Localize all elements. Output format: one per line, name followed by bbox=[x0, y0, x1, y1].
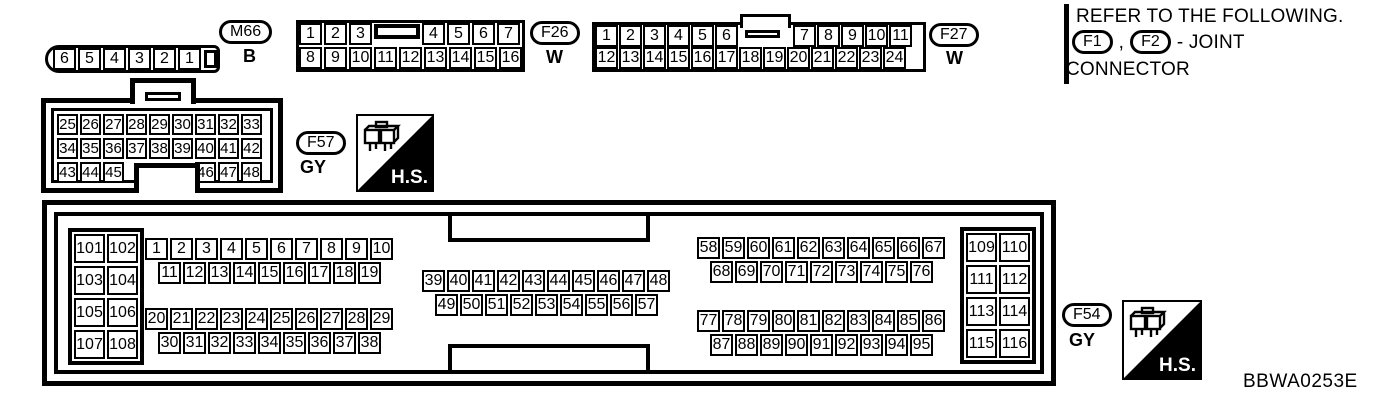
pin-cell: 24 bbox=[883, 47, 906, 69]
pin-cell: 72 bbox=[810, 261, 833, 283]
f57-row-34-42: 343536373839404142 bbox=[57, 138, 267, 159]
pin-cell: 116 bbox=[999, 329, 1030, 358]
f54-row-30-38: 303132333435363738 bbox=[158, 332, 393, 354]
pin-cell: 37 bbox=[333, 332, 356, 354]
pin-cell: 7 bbox=[497, 23, 520, 45]
f27-row-top: 123456 7891011 bbox=[595, 25, 923, 47]
pin-cell: 106 bbox=[107, 298, 138, 327]
hs-connector-glyph-icon bbox=[362, 120, 404, 156]
pin-cell: 90 bbox=[785, 334, 808, 356]
pin-cell: 76 bbox=[910, 261, 933, 283]
f54-bottom-key-slot bbox=[448, 344, 650, 370]
pin-cell: 14 bbox=[643, 47, 666, 69]
pin-cell: 51 bbox=[485, 294, 508, 316]
pin-cell: 64 bbox=[847, 237, 870, 259]
pin-cell: 3 bbox=[643, 25, 666, 47]
pin-cell: 40 bbox=[447, 270, 470, 292]
color-code-f57: GY bbox=[300, 158, 326, 176]
pin-cell: 32 bbox=[218, 114, 239, 135]
pin-cell: 21 bbox=[170, 308, 193, 330]
color-code-f26: W bbox=[546, 48, 563, 66]
pin-cell: 44 bbox=[80, 162, 101, 183]
pin-cell: 48 bbox=[241, 162, 262, 183]
pin-cell: 103 bbox=[74, 266, 105, 295]
connector-label-f57: F57 bbox=[296, 131, 346, 155]
pin-cell: 5 bbox=[447, 23, 470, 45]
pin-cell: 20 bbox=[787, 47, 810, 69]
pin-cell: 104 bbox=[107, 266, 138, 295]
pin-cell: 70 bbox=[760, 261, 783, 283]
pin-cell: 25 bbox=[270, 308, 293, 330]
pin-cell: 84 bbox=[872, 310, 895, 332]
pin-cell: 37 bbox=[126, 138, 147, 159]
pin-cell: 89 bbox=[760, 334, 783, 356]
f54-row-39-48: 39404142434445464748 bbox=[422, 270, 670, 292]
pin-cell: 8 bbox=[299, 47, 322, 69]
f54-row-11-19: 111213141516171819 bbox=[158, 262, 393, 284]
connector-m66-body: 654321 bbox=[45, 45, 220, 73]
pin-cell: 74 bbox=[860, 261, 883, 283]
pin-cell: 18 bbox=[333, 262, 356, 284]
f54-group-39-57: 39404142434445464748 495051525354555657 bbox=[422, 270, 670, 316]
pin-cell: 46 bbox=[597, 270, 620, 292]
pin-cell: 11 bbox=[889, 25, 912, 47]
f27-pins-1-6: 123456 bbox=[595, 25, 738, 47]
pin-cell: 92 bbox=[835, 334, 858, 356]
pin-cell: 4 bbox=[103, 48, 126, 70]
hs-label: H.S. bbox=[391, 168, 428, 187]
pin-cell: 77 bbox=[697, 310, 720, 332]
pin-cell: 79 bbox=[747, 310, 770, 332]
pin-cell: 19 bbox=[763, 47, 786, 69]
pin-cell: 107 bbox=[74, 330, 105, 359]
pin-cell: 21 bbox=[811, 47, 834, 69]
pin-cell: 22 bbox=[835, 47, 858, 69]
pin-cell: 65 bbox=[872, 237, 895, 259]
pin-cell: 109 bbox=[966, 233, 997, 262]
pin-cell: 42 bbox=[241, 138, 262, 159]
pin-cell: 110 bbox=[999, 233, 1030, 262]
pin-cell: 5 bbox=[245, 238, 268, 260]
pin-cell: 16 bbox=[283, 262, 306, 284]
pin-cell: 45 bbox=[103, 162, 124, 183]
f54-row-77-86: 77787980818283848586 bbox=[697, 310, 945, 332]
pin-cell: 7 bbox=[295, 238, 318, 260]
pin-cell: 41 bbox=[472, 270, 495, 292]
pin-cell: 8 bbox=[817, 25, 840, 47]
pin-cell: 17 bbox=[308, 262, 331, 284]
pin-cell: 73 bbox=[835, 261, 858, 283]
pin-cell: 40 bbox=[195, 138, 216, 159]
pin-cell: 86 bbox=[922, 310, 945, 332]
pin-cell: 17 bbox=[715, 47, 738, 69]
pin-cell: 48 bbox=[647, 270, 670, 292]
pin-cell: 39 bbox=[422, 270, 445, 292]
pin-cell: 1 bbox=[145, 238, 168, 260]
pin-cell: 91 bbox=[810, 334, 833, 356]
pin-cell: 26 bbox=[295, 308, 318, 330]
pin-cell: 8 bbox=[320, 238, 343, 260]
pin-cell: 38 bbox=[149, 138, 170, 159]
pin-cell: 31 bbox=[195, 114, 216, 135]
pin-cell: 66 bbox=[897, 237, 920, 259]
pin-cell: 114 bbox=[999, 297, 1030, 326]
pin-cell: 3 bbox=[128, 48, 151, 70]
pin-cell: 113 bbox=[966, 297, 997, 326]
pin-cell: 6 bbox=[715, 25, 738, 47]
pin-cell: 27 bbox=[103, 114, 124, 135]
connector-label-f26: F26 bbox=[530, 21, 580, 45]
pin-cell: 6 bbox=[472, 23, 495, 45]
pin-cell: 81 bbox=[797, 310, 820, 332]
pin-cell: 23 bbox=[220, 308, 243, 330]
pin-cell: 42 bbox=[497, 270, 520, 292]
note-suffix: - JOINT bbox=[1177, 33, 1245, 52]
pin-cell: 33 bbox=[233, 332, 256, 354]
pin-cell: 88 bbox=[735, 334, 758, 356]
pin-cell: 55 bbox=[585, 294, 608, 316]
pin-cell: 36 bbox=[103, 138, 124, 159]
figure-code: BBWA0253E bbox=[1243, 372, 1358, 391]
f57-pins-46-48: 464748 bbox=[195, 162, 262, 183]
pin-cell: 112 bbox=[999, 265, 1030, 294]
connector-f27-body: 123456 7891011 1213141516171819202122232… bbox=[592, 22, 926, 72]
color-code-f27: W bbox=[946, 49, 963, 67]
f54-group-1-19: 12345678910 111213141516171819 bbox=[145, 238, 393, 284]
pin-cell: 15 bbox=[258, 262, 281, 284]
pin-cell: 39 bbox=[172, 138, 193, 159]
pin-cell: 9 bbox=[324, 47, 347, 69]
pin-cell: 67 bbox=[922, 237, 945, 259]
pin-cell: 53 bbox=[535, 294, 558, 316]
hs-connector-glyph-icon bbox=[1128, 306, 1170, 342]
f57-row-25-33: 252627282930313233 bbox=[57, 114, 267, 135]
pin-cell: 50 bbox=[460, 294, 483, 316]
pin-cell: 30 bbox=[172, 114, 193, 135]
pin-cell: 23 bbox=[859, 47, 882, 69]
pin-cell: 101 bbox=[74, 234, 105, 263]
pin-cell: 15 bbox=[474, 47, 497, 69]
f54-group-58-76: 58596061626364656667 686970717273747576 bbox=[697, 237, 945, 283]
pin-cell: 75 bbox=[885, 261, 908, 283]
pin-cell: 62 bbox=[797, 237, 820, 259]
pin-cell: 10 bbox=[349, 47, 372, 69]
note-line-2: F1 , F2 - JOINT bbox=[1072, 30, 1245, 54]
connector-pinout-diagram: 654321 M66 B 123 4567 8910111213141516 F… bbox=[0, 0, 1392, 420]
pin-cell: 82 bbox=[822, 310, 845, 332]
pin-cell: 29 bbox=[149, 114, 170, 135]
connector-f57-body: 252627282930313233 343536373839404142 43… bbox=[41, 98, 283, 193]
pin-cell: 111 bbox=[966, 265, 997, 294]
pin-cell: 83 bbox=[847, 310, 870, 332]
pin-cell: 2 bbox=[170, 238, 193, 260]
m66-key-tab bbox=[204, 50, 217, 68]
pin-cell: 47 bbox=[622, 270, 645, 292]
pin-cell: 4 bbox=[667, 25, 690, 47]
pin-cell: 11 bbox=[158, 262, 181, 284]
pin-cell: 31 bbox=[183, 332, 206, 354]
f54-row-49-57: 495051525354555657 bbox=[435, 294, 670, 316]
pin-cell: 1 bbox=[595, 25, 618, 47]
f54-row-58-67: 58596061626364656667 bbox=[697, 237, 945, 259]
pin-cell: 28 bbox=[345, 308, 368, 330]
pin-cell: 14 bbox=[233, 262, 256, 284]
pin-cell: 2 bbox=[619, 25, 642, 47]
note-separator: , bbox=[1119, 33, 1124, 52]
pin-cell: 12 bbox=[399, 47, 422, 69]
pin-cell: 68 bbox=[710, 261, 733, 283]
pin-cell: 35 bbox=[80, 138, 101, 159]
pin-cell: 3 bbox=[349, 23, 372, 45]
f54-inner-frame: 101102103104105106107108 12345678910 111… bbox=[54, 212, 1044, 374]
pin-cell: 95 bbox=[910, 334, 933, 356]
pin-cell: 12 bbox=[183, 262, 206, 284]
f26-key-slot bbox=[374, 24, 420, 39]
pin-cell: 49 bbox=[435, 294, 458, 316]
f27-key-bump bbox=[740, 14, 791, 28]
pin-cell: 33 bbox=[241, 114, 262, 135]
pin-cell: 32 bbox=[208, 332, 231, 354]
pin-cell: 78 bbox=[722, 310, 745, 332]
pin-cell: 16 bbox=[499, 47, 522, 69]
pin-cell: 69 bbox=[735, 261, 758, 283]
f57-bottom-notch bbox=[134, 163, 200, 193]
connector-f54-body: 101102103104105106107108 12345678910 111… bbox=[42, 200, 1056, 386]
pin-cell: 45 bbox=[572, 270, 595, 292]
pin-cell: 4 bbox=[220, 238, 243, 260]
f27-row-bottom: 12131415161718192021222324 bbox=[595, 47, 923, 69]
f57-pins-43-45: 434445 bbox=[57, 162, 124, 183]
pin-cell: 16 bbox=[691, 47, 714, 69]
connector-label-f54: F54 bbox=[1062, 303, 1112, 327]
f27-key-area bbox=[740, 25, 791, 47]
joint-connector-f2: F2 bbox=[1130, 30, 1171, 54]
pin-cell: 13 bbox=[619, 47, 642, 69]
pin-cell: 85 bbox=[897, 310, 920, 332]
pin-cell: 115 bbox=[966, 329, 997, 358]
pin-cell: 9 bbox=[345, 238, 368, 260]
pin-cell: 29 bbox=[370, 308, 393, 330]
pin-cell: 105 bbox=[74, 298, 105, 327]
pin-cell: 41 bbox=[218, 138, 239, 159]
note-line-1: REFER TO THE FOLLOWING. bbox=[1076, 7, 1343, 26]
pin-cell: 13 bbox=[424, 47, 447, 69]
m66-pin-row: 654321 bbox=[53, 48, 201, 70]
pin-cell: 26 bbox=[80, 114, 101, 135]
pin-cell: 44 bbox=[547, 270, 570, 292]
pin-cell: 63 bbox=[822, 237, 845, 259]
f54-grid-101-108: 101102103104105106107108 bbox=[68, 228, 144, 365]
color-code-m66: B bbox=[243, 47, 256, 65]
pin-cell: 38 bbox=[358, 332, 381, 354]
pin-cell: 7 bbox=[793, 25, 816, 47]
pin-cell: 18 bbox=[739, 47, 762, 69]
f54-row-1-10: 12345678910 bbox=[145, 238, 393, 260]
pin-cell: 12 bbox=[595, 47, 618, 69]
pin-cell: 108 bbox=[107, 330, 138, 359]
pin-cell: 15 bbox=[667, 47, 690, 69]
pin-cell: 30 bbox=[158, 332, 181, 354]
connector-f26-body: 123 4567 8910111213141516 bbox=[296, 20, 525, 72]
pin-cell: 34 bbox=[57, 138, 78, 159]
f54-grid-109-116: 109110111112113114115116 bbox=[960, 227, 1036, 364]
pin-cell: 1 bbox=[178, 48, 201, 70]
pin-cell: 2 bbox=[153, 48, 176, 70]
pin-cell: 87 bbox=[710, 334, 733, 356]
pin-cell: 4 bbox=[422, 23, 445, 45]
pin-cell: 2 bbox=[324, 23, 347, 45]
hs-label: H.S. bbox=[1159, 356, 1196, 375]
pin-cell: 1 bbox=[299, 23, 322, 45]
pin-cell: 54 bbox=[560, 294, 583, 316]
pin-cell: 10 bbox=[865, 25, 888, 47]
pin-cell: 24 bbox=[245, 308, 268, 330]
pin-cell: 57 bbox=[635, 294, 658, 316]
pin-cell: 71 bbox=[785, 261, 808, 283]
pin-cell: 35 bbox=[283, 332, 306, 354]
pin-cell: 58 bbox=[697, 237, 720, 259]
pin-cell: 27 bbox=[320, 308, 343, 330]
pin-cell: 11 bbox=[374, 47, 397, 69]
f26-pins-4-7: 4567 bbox=[422, 23, 520, 45]
pin-cell: 22 bbox=[195, 308, 218, 330]
pin-cell: 20 bbox=[145, 308, 168, 330]
pin-cell: 52 bbox=[510, 294, 533, 316]
f26-pins-1-3: 123 bbox=[299, 23, 372, 45]
connector-label-m66: M66 bbox=[219, 20, 272, 44]
f54-top-key-slot bbox=[448, 216, 650, 242]
f26-row-bottom: 8910111213141516 bbox=[299, 47, 522, 69]
pin-cell: 14 bbox=[449, 47, 472, 69]
note-line-3: CONNECTOR bbox=[1066, 60, 1190, 79]
pin-cell: 43 bbox=[57, 162, 78, 183]
pin-cell: 47 bbox=[218, 162, 239, 183]
f54-row-68-76: 686970717273747576 bbox=[710, 261, 945, 283]
pin-cell: 59 bbox=[722, 237, 745, 259]
pin-cell: 34 bbox=[258, 332, 281, 354]
pin-cell: 80 bbox=[772, 310, 795, 332]
pin-cell: 6 bbox=[53, 48, 76, 70]
pin-cell: 36 bbox=[308, 332, 331, 354]
joint-connector-f1: F1 bbox=[1072, 30, 1113, 54]
f27-pins-7-11: 7891011 bbox=[793, 25, 912, 47]
pin-cell: 61 bbox=[772, 237, 795, 259]
pin-cell: 93 bbox=[860, 334, 883, 356]
f26-row-top: 123 4567 bbox=[299, 23, 522, 45]
pin-cell: 6 bbox=[270, 238, 293, 260]
pin-cell: 102 bbox=[107, 234, 138, 263]
f27-key-slot bbox=[745, 30, 780, 38]
pin-cell: 3 bbox=[195, 238, 218, 260]
pin-cell: 94 bbox=[885, 334, 908, 356]
f54-group-77-95: 77787980818283848586 878889909192939495 bbox=[697, 310, 945, 356]
pin-cell: 5 bbox=[691, 25, 714, 47]
pin-cell: 43 bbox=[522, 270, 545, 292]
pin-cell: 5 bbox=[78, 48, 101, 70]
f57-top-tab-slot bbox=[145, 92, 181, 101]
pin-cell: 10 bbox=[370, 238, 393, 260]
hs-icon-upper: H.S. bbox=[356, 114, 434, 192]
f54-row-87-95: 878889909192939495 bbox=[710, 334, 945, 356]
pin-cell: 9 bbox=[841, 25, 864, 47]
pin-cell: 56 bbox=[610, 294, 633, 316]
pin-cell: 25 bbox=[57, 114, 78, 135]
f57-top-tab bbox=[130, 78, 196, 104]
f54-group-20-38: 20212223242526272829 303132333435363738 bbox=[145, 308, 393, 354]
hs-icon-lower: H.S. bbox=[1122, 300, 1202, 380]
pin-cell: 60 bbox=[747, 237, 770, 259]
color-code-f54: GY bbox=[1069, 331, 1095, 349]
pin-cell: 13 bbox=[208, 262, 231, 284]
pin-cell: 28 bbox=[126, 114, 147, 135]
connector-label-f27: F27 bbox=[929, 23, 979, 47]
f54-row-20-29: 20212223242526272829 bbox=[145, 308, 393, 330]
pin-cell: 19 bbox=[358, 262, 381, 284]
